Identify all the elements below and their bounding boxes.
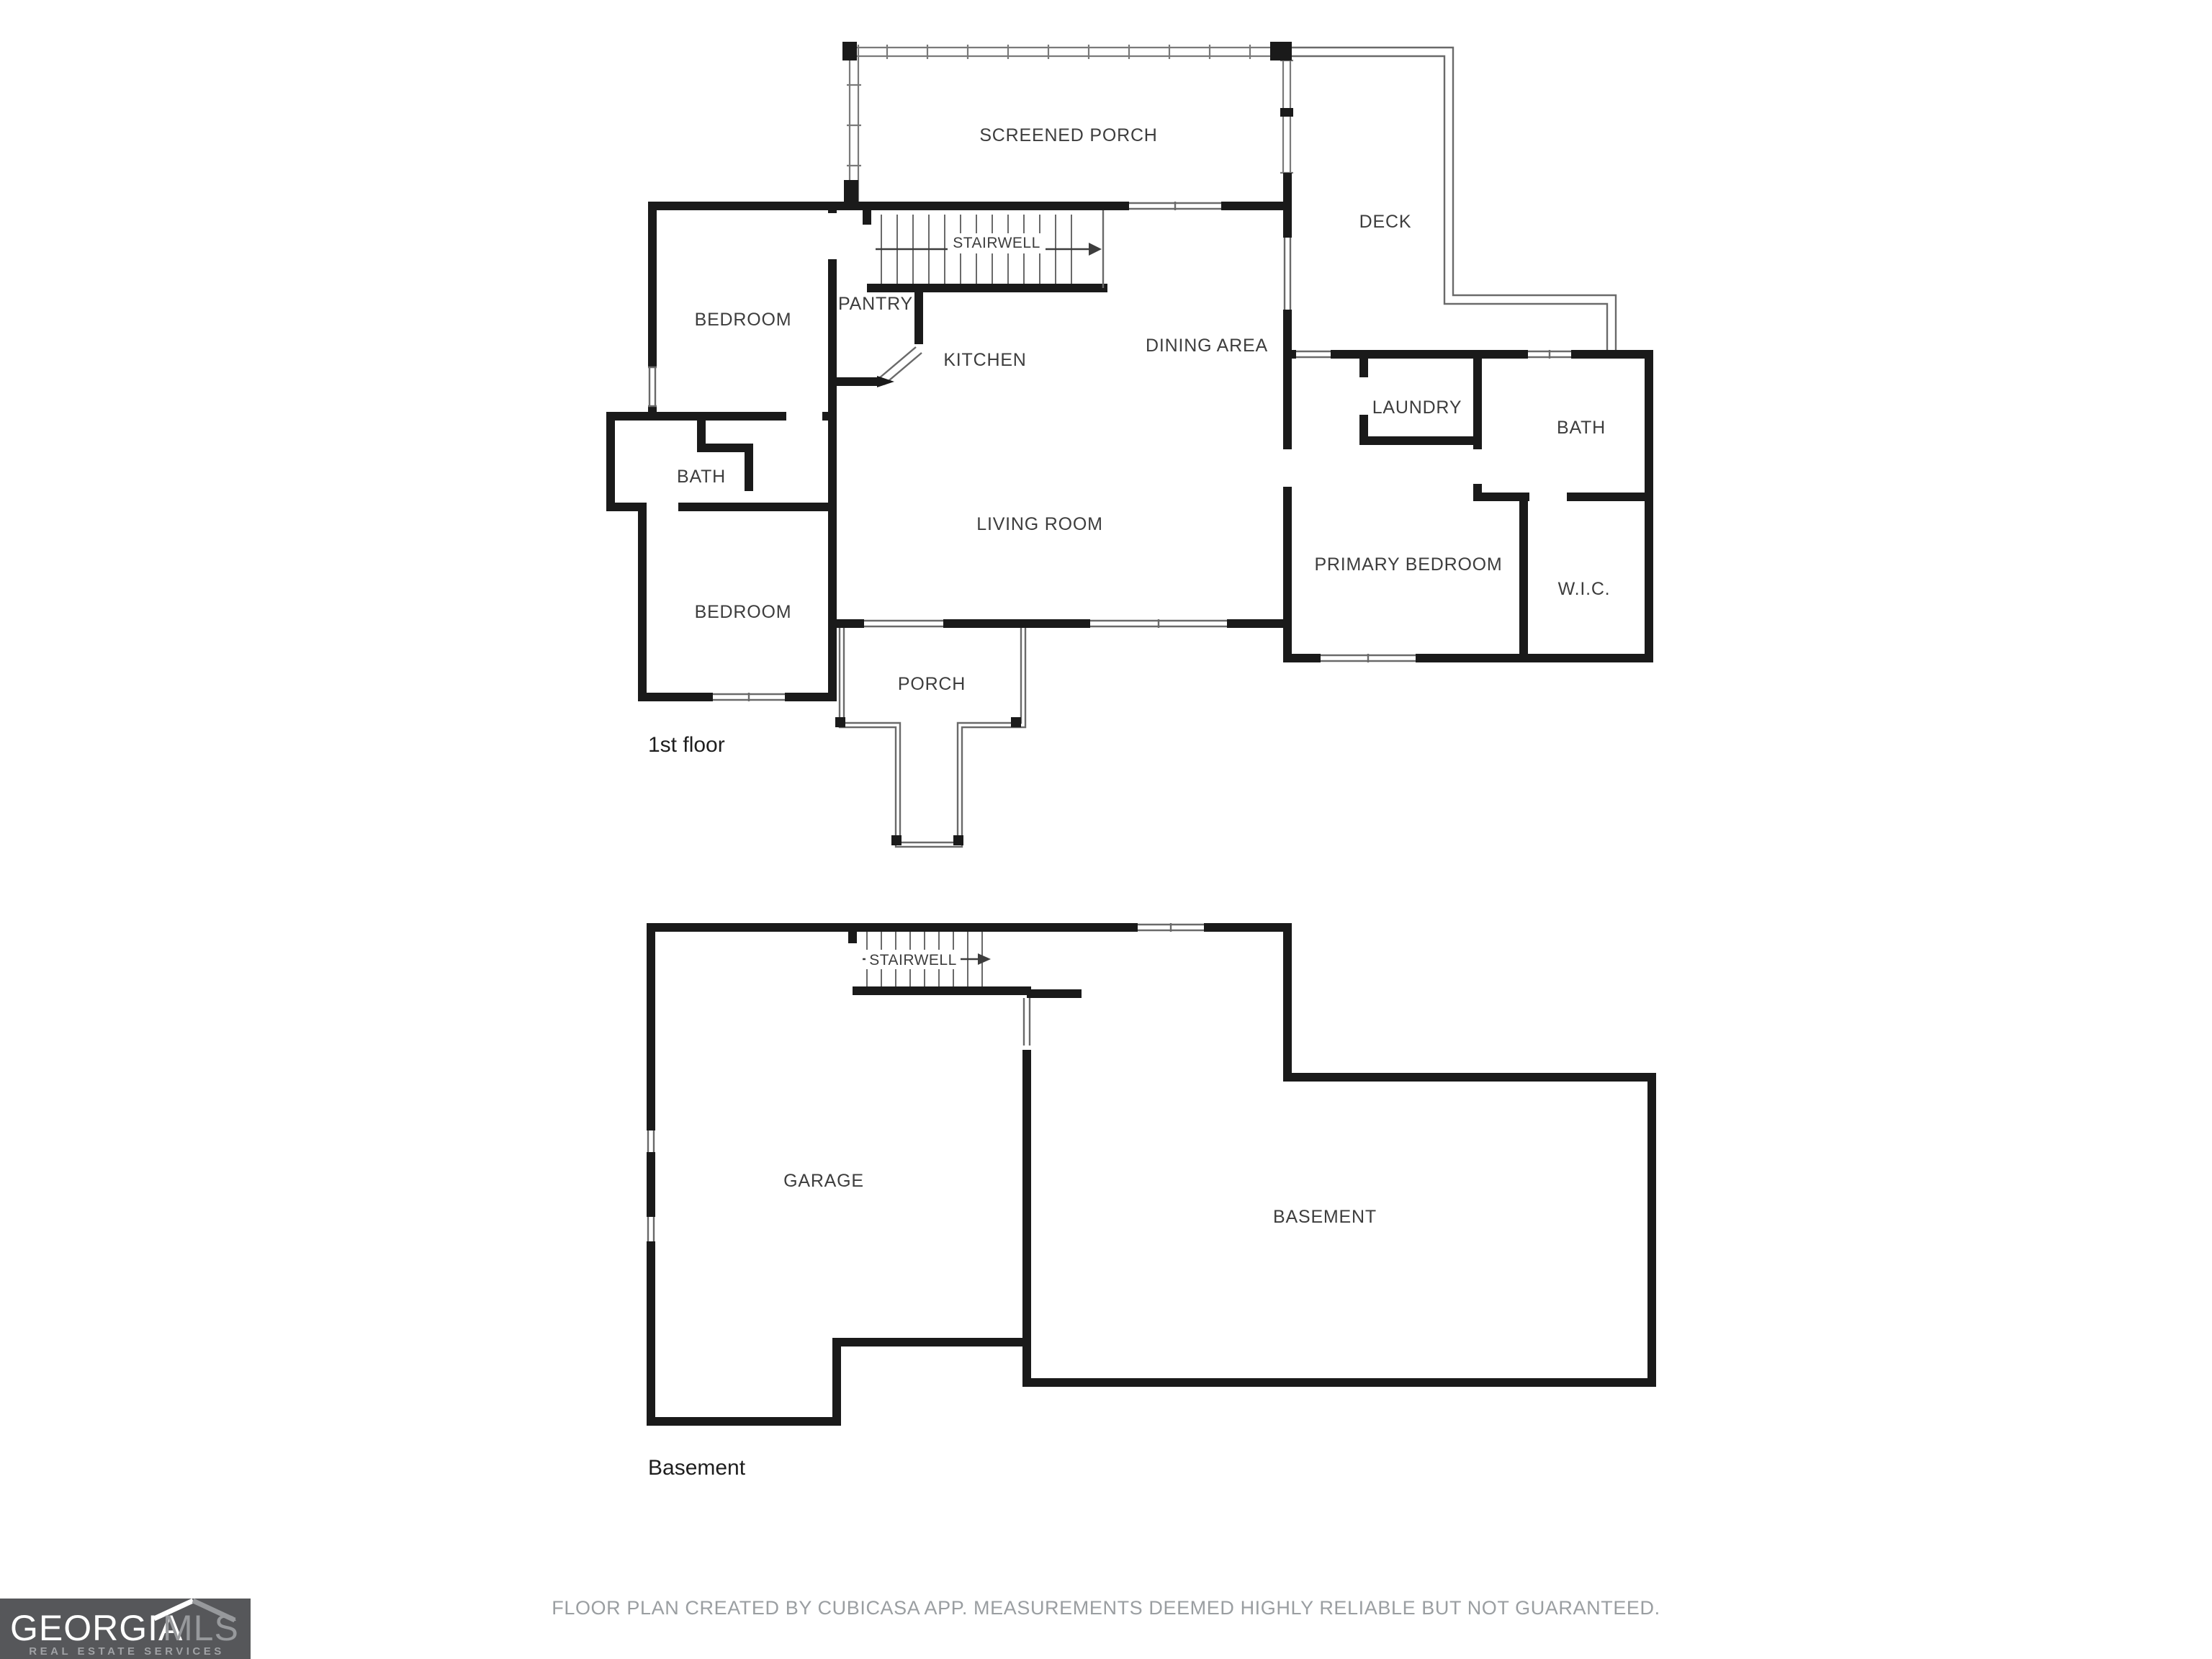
room-label-screened-porch: SCREENED PORCH xyxy=(979,125,1157,145)
logo-text-mls: MLS xyxy=(163,1608,239,1648)
room-label-laundry: LAUNDRY xyxy=(1372,397,1462,418)
deck-outline xyxy=(1292,48,1616,350)
room-label-pantry: PANTRY xyxy=(838,294,913,314)
room-label-living-room: LIVING ROOM xyxy=(976,514,1103,534)
first-floor-windows xyxy=(648,202,1571,701)
room-label-primary-bedroom: PRIMARY BEDROOM xyxy=(1314,554,1502,575)
room-label-basement: BASEMENT xyxy=(1273,1207,1377,1227)
screened-porch-screen-walls xyxy=(847,45,1293,202)
stairwell-arrow-icon xyxy=(1089,243,1102,256)
screened-porch-posts xyxy=(842,42,1293,206)
room-label-stairwell-basement: STAIRWELL xyxy=(869,952,957,968)
room-label-bedroom-top: BEDROOM xyxy=(695,310,792,330)
porch-posts xyxy=(835,717,1021,845)
room-label-stairwell-1f: STAIRWELL xyxy=(953,235,1040,251)
floor-plan-canvas: SCREENED PORCH DECK STAIRWELL PANTRY KIT… xyxy=(0,0,2212,1659)
basement-plan: STAIRWELL GARAGE BASEMENT Basement xyxy=(647,923,1656,1480)
room-label-porch: PORCH xyxy=(898,674,966,694)
room-label-garage: GARAGE xyxy=(783,1171,864,1191)
georgia-mls-logo: GEORGIA MLS REAL ESTATE SERVICES xyxy=(0,1599,251,1659)
first-floor-plan: SCREENED PORCH DECK STAIRWELL PANTRY KIT… xyxy=(606,42,1653,847)
room-label-bath-right: BATH xyxy=(1557,418,1606,438)
room-label-kitchen: KITCHEN xyxy=(943,350,1026,370)
room-label-dining-area: DINING AREA xyxy=(1146,336,1268,356)
room-label-deck: DECK xyxy=(1359,212,1412,232)
room-label-wic: W.I.C. xyxy=(1558,579,1611,599)
porch-outline xyxy=(840,628,1025,847)
disclaimer-text: FLOOR PLAN CREATED BY CUBICASA APP. MEAS… xyxy=(552,1597,1660,1619)
logo-tagline: REAL ESTATE SERVICES xyxy=(29,1645,224,1658)
room-label-bath-left: BATH xyxy=(677,467,726,487)
footer: FLOOR PLAN CREATED BY CUBICASA APP. MEAS… xyxy=(0,1597,1660,1659)
floor-label-basement: Basement xyxy=(648,1456,746,1480)
room-label-bedroom-bottom: BEDROOM xyxy=(695,602,792,622)
floor-label-1st-floor: 1st floor xyxy=(648,733,725,757)
basement-stairwell-arrow-icon xyxy=(978,953,991,965)
basement-windows xyxy=(648,923,1204,1241)
logo-text-georgia: GEORGIA xyxy=(10,1608,183,1648)
